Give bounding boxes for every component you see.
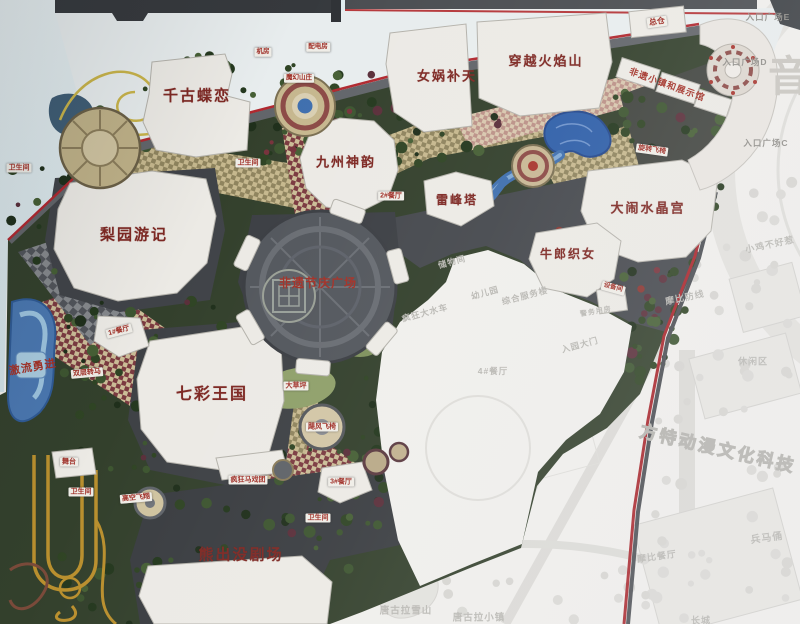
park-map-photo: 千古蝶恋女娲补天穿越火焰山九州神韵雷峰塔大闹水晶宫牛郎织女梨园游记七彩王国熊出没… xyxy=(0,0,800,624)
map-graphic xyxy=(0,0,800,624)
